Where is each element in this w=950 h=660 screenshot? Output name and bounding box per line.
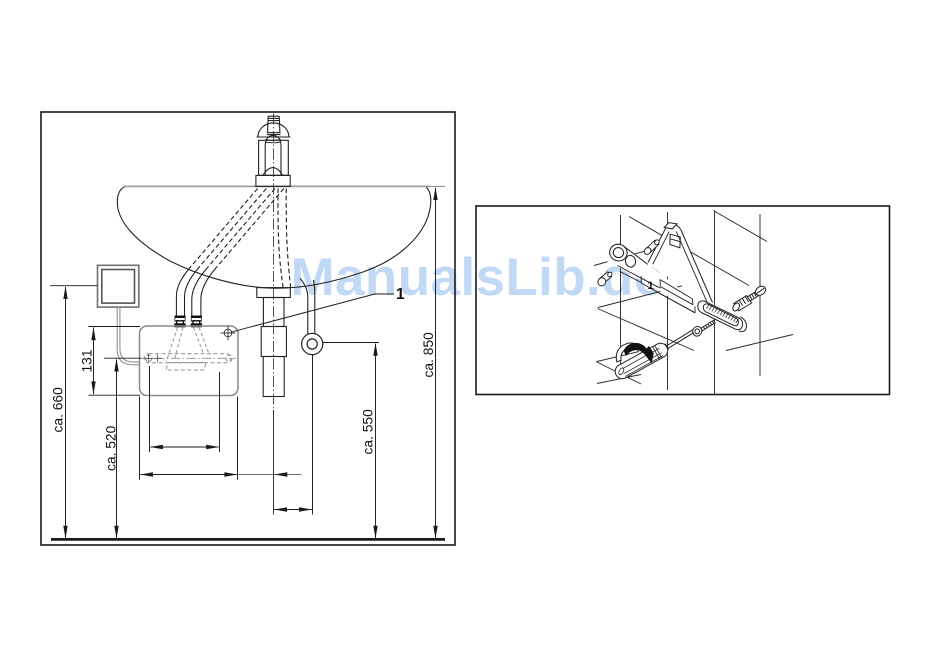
svg-text:1: 1 — [396, 286, 405, 303]
svg-text:ca. 660: ca. 660 — [51, 387, 66, 433]
svg-text:ca. 850: ca. 850 — [421, 332, 436, 378]
svg-text:131: 131 — [80, 349, 95, 372]
svg-text:ca. 520: ca. 520 — [104, 425, 119, 471]
svg-text:1: 1 — [648, 280, 654, 292]
svg-text:ca. 550: ca. 550 — [361, 409, 376, 455]
